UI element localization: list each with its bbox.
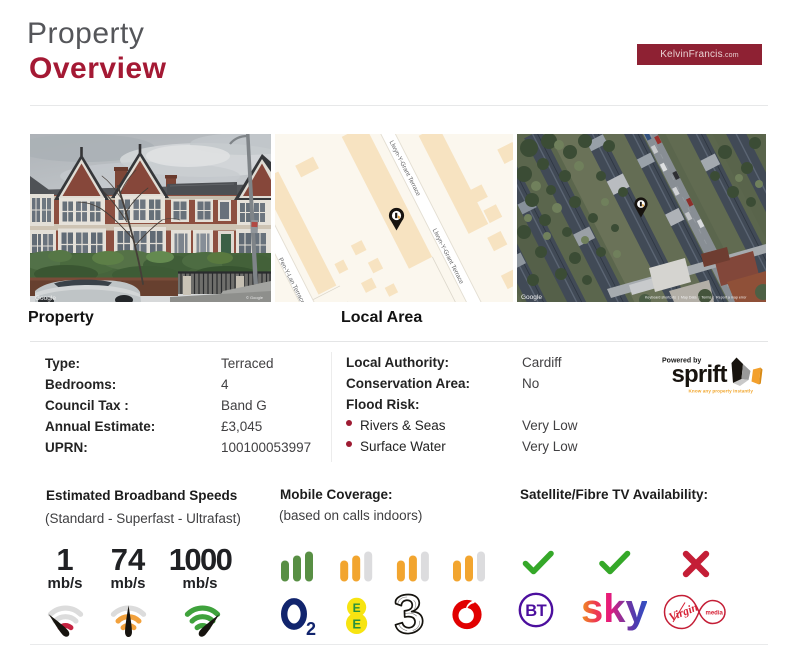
svg-text:Know any property instantly: Know any property instantly [689,389,754,394]
svg-text:E: E [353,601,361,615]
svg-text:© Google: © Google [246,295,264,300]
svg-text:sky: sky [581,590,647,631]
svg-text:E: E [352,617,361,632]
svg-text:BT: BT [525,602,546,620]
svg-text:media: media [706,611,724,617]
svg-text:Google: Google [35,295,56,302]
svg-text:2: 2 [306,619,316,639]
svg-text:Keyboard shortcuts | Map Dat: Keyboard shortcuts | Map Data | Terms | … [645,296,747,300]
svg-text:sprift: sprift [672,361,728,388]
svg-text:Google: Google [521,294,542,301]
